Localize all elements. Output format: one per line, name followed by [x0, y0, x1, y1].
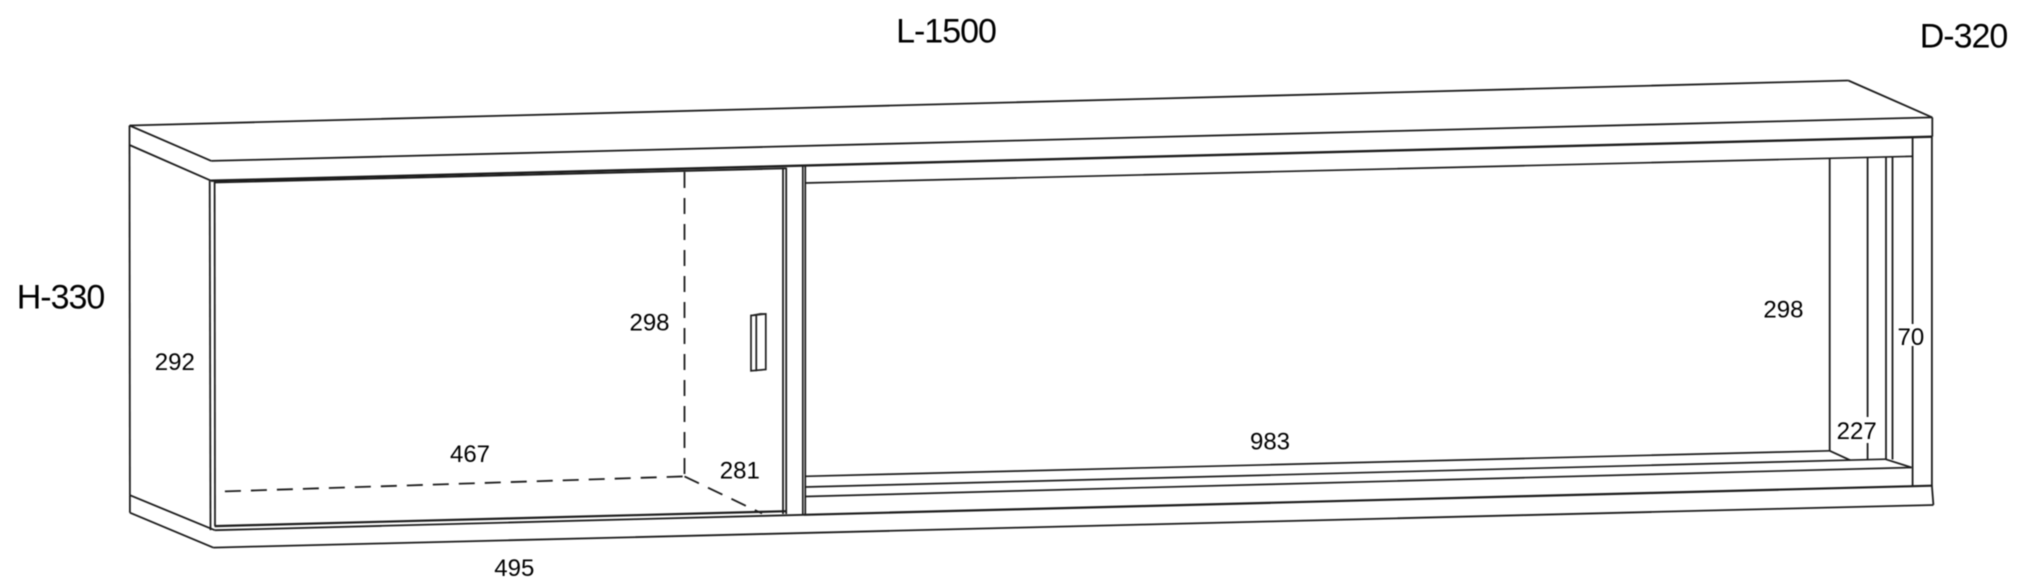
- svg-text:983: 983: [1250, 429, 1290, 456]
- svg-text:L-1500: L-1500: [896, 13, 996, 51]
- svg-text:D-320: D-320: [1920, 18, 2008, 56]
- svg-text:227: 227: [1837, 418, 1877, 445]
- svg-text:467: 467: [450, 441, 490, 468]
- svg-text:495: 495: [494, 555, 534, 582]
- svg-text:298: 298: [1763, 297, 1803, 324]
- svg-text:292: 292: [155, 349, 195, 376]
- svg-text:70: 70: [1898, 324, 1925, 351]
- svg-text:298: 298: [629, 310, 669, 337]
- svg-text:281: 281: [720, 458, 760, 485]
- svg-text:H-330: H-330: [17, 279, 105, 317]
